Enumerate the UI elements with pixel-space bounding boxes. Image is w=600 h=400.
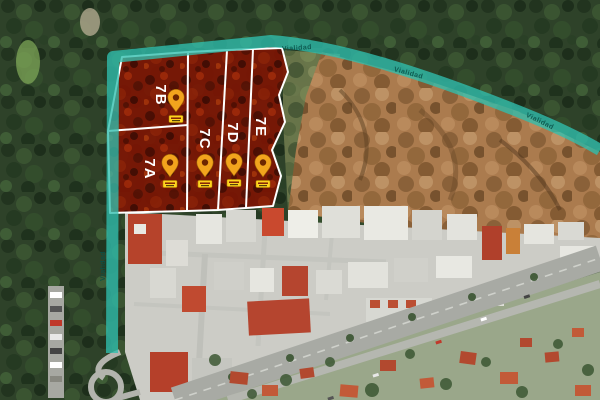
lot-label-7D: 7D	[224, 122, 241, 143]
aerial-map: 7B 7A 7C 7D 7E Vialidad Vialidad Vialida…	[0, 0, 600, 400]
lot-label-7B: 7B	[152, 84, 169, 105]
aerial-map-canvas: 7B 7A 7C 7D 7E Vialidad Vialidad Vialida…	[0, 0, 600, 400]
lot-label-7C: 7C	[196, 128, 213, 149]
rocky-outcrop	[80, 8, 100, 36]
road-label: Vialidad	[100, 251, 107, 281]
lots-overlay: 7B 7A 7C 7D 7E	[108, 48, 288, 213]
lot-label-7A: 7A	[141, 158, 158, 179]
park-road	[48, 286, 64, 398]
forest-clearing	[16, 40, 40, 84]
lot-label-7E: 7E	[252, 117, 269, 137]
